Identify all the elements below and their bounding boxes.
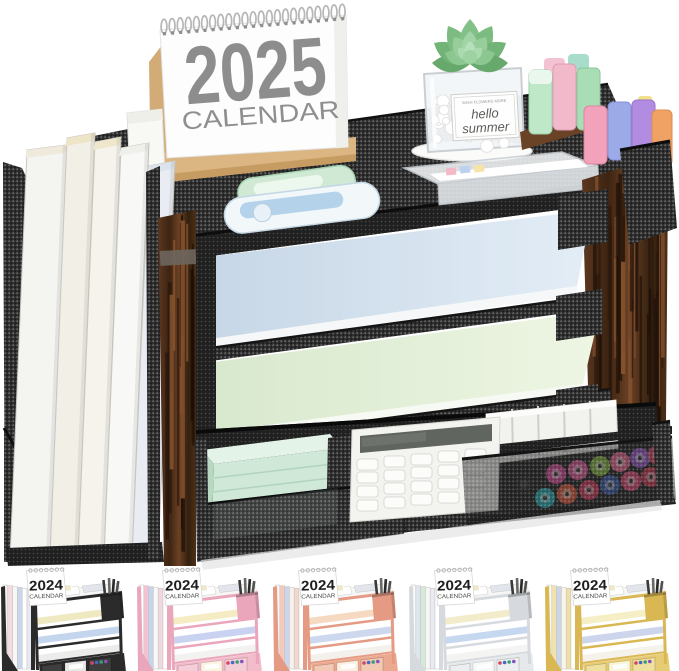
svg-text:2024: 2024 [437, 576, 472, 593]
svg-text:CALENDAR: CALENDAR [29, 593, 64, 600]
svg-text:2024: 2024 [29, 576, 64, 593]
svg-text:CALENDAR: CALENDAR [301, 593, 336, 600]
svg-text:CALENDAR: CALENDAR [437, 593, 472, 600]
svg-text:CALENDAR: CALENDAR [165, 593, 200, 600]
svg-text:2024: 2024 [165, 576, 200, 593]
svg-text:summer: summer [462, 119, 510, 136]
svg-text:CALENDAR: CALENDAR [573, 593, 608, 600]
svg-text:2024: 2024 [301, 576, 336, 593]
svg-text:2024: 2024 [573, 576, 608, 593]
